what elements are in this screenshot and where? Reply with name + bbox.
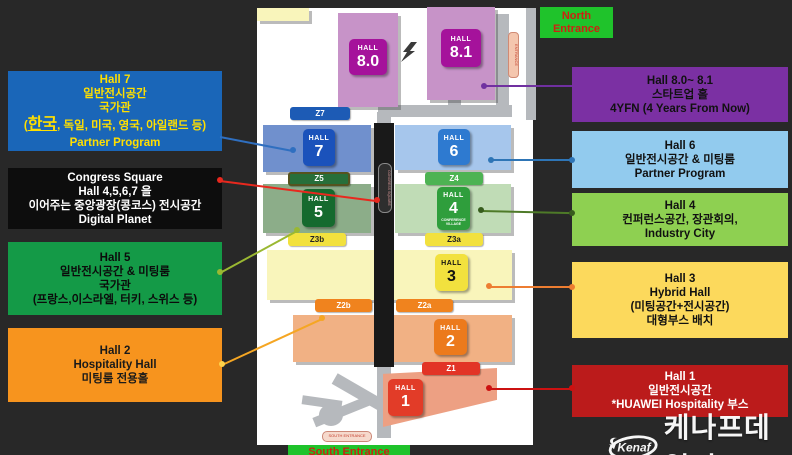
dot-hall2-box <box>219 361 225 367</box>
badge-number: 2 <box>434 333 467 350</box>
badge-number: 5 <box>302 204 335 221</box>
badge-number: 8.0 <box>349 53 387 70</box>
hall6-lines: Hall 6일반전시공간 & 미팅룸Partner Program <box>572 139 788 181</box>
hall-2-shape <box>293 315 512 362</box>
hall-8-0-badge: HALL 8.0 <box>349 39 387 75</box>
dot-hall1-map <box>486 385 492 391</box>
text-line: Hall 6 <box>572 139 788 153</box>
dot-hall1-box <box>569 385 575 391</box>
connector-hall3 <box>489 286 572 288</box>
hall7-footer: Partner Program <box>8 136 222 150</box>
badge-word: HALL <box>437 192 470 200</box>
text-line: Hall 5 <box>8 251 222 265</box>
badge-number: 4 <box>437 200 470 217</box>
text-line: 미팅룸 전용홀 <box>8 372 222 386</box>
watermark-site-name: 케나프데일리 <box>664 406 792 455</box>
dot-hall2-map <box>319 315 325 321</box>
hall-8-1-badge: HALL 8.1 <box>441 29 481 67</box>
annotation-hall2: Hall 2Hospitality Hall미팅룸 전용홀 <box>8 328 222 402</box>
annotation-congress-square: Congress SquareHall 4,5,6,7 을이어주는 중앙광장(콩… <box>8 168 222 229</box>
watermark: Kenaf 케나프데일리 <box>606 406 792 455</box>
zone-badge-z1: Z1 <box>422 362 480 375</box>
hall-6-badge: HALL 6 <box>438 129 470 165</box>
text-line: 일반전시공간 & 미팅룸 <box>8 265 222 279</box>
dot-hall5-map <box>294 227 300 233</box>
badge-word: HALL <box>435 260 468 268</box>
badge-number: 8.1 <box>441 44 481 61</box>
badge-number: 7 <box>303 143 335 160</box>
hall-2-badge: HALL 2 <box>434 319 467 355</box>
hall-3-badge: HALL 3 <box>435 254 468 291</box>
text-line: 대형부스 배치 <box>572 314 788 328</box>
text-line: Hall 7 <box>8 73 222 87</box>
badge-word: HALL <box>441 36 481 44</box>
text-line: 4YFN (4 Years From Now) <box>572 102 788 116</box>
north-entrance-label: North Entrance <box>540 7 613 38</box>
congress-square-capsule: CONGRESS SQUARE <box>378 163 392 213</box>
connector-hall8 <box>484 85 572 87</box>
dot-hall5-box <box>217 269 223 275</box>
hall7-lines: Hall 7일반전시공간국가관 <box>8 73 222 115</box>
hall-1-badge: HALL 1 <box>388 379 423 416</box>
kenaf-logo-icon: Kenaf <box>606 426 659 455</box>
zone-badge-z2a: Z2a <box>396 299 453 312</box>
congress-lines: Congress SquareHall 4,5,6,7 을이어주는 중앙광장(콩… <box>8 171 222 227</box>
annotation-hall7: Hall 7일반전시공간국가관 (한국, 독일, 미국, 영국, 아일랜드 등)… <box>8 71 222 151</box>
text-line: Hall 1 <box>572 370 788 384</box>
badge-number: 3 <box>435 268 468 285</box>
venue-map-slide: North Entrance Hall 7일반전시공간국가관 (한국, 독일, … <box>0 0 792 455</box>
south-entrance-pill: SOUTH ENTRANCE <box>322 431 372 442</box>
badge-word: HALL <box>388 385 423 393</box>
korea-emphasis: 한국 <box>28 116 57 133</box>
dot-hall7-map <box>290 147 296 153</box>
hall7-countries-line: (한국, 독일, 미국, 영국, 아일랜드 등) <box>8 115 222 136</box>
dot-hall4-map <box>478 207 484 213</box>
dot-congress-box <box>217 177 223 183</box>
text-line: Hall 2 <box>8 344 222 358</box>
annotation-hall5: Hall 5일반전시공간 & 미팅룸국가관(프랑스,이스라엘, 터키, 스위스 … <box>8 242 222 315</box>
hall-7-badge: HALL 7 <box>303 129 335 166</box>
hall8-lines: Hall 8.0~ 8.1스타트업 홀4YFN (4 Years From No… <box>572 74 788 116</box>
zone-badge-z3b: Z3b <box>288 233 346 246</box>
text-line: Hall 4 <box>572 199 788 213</box>
badge-word: HALL <box>302 196 335 204</box>
badge-subtext: CONFERENCE VILLAGE <box>437 218 470 226</box>
zone-badge-z5: Z5 <box>288 172 350 186</box>
text-line: 스타트업 홀 <box>572 88 788 102</box>
annotation-hall4: Hall 4컨퍼런스공간, 장관회의,Industry City <box>572 193 788 246</box>
dot-hall3-box <box>569 284 575 290</box>
text-line: Hall 4,5,6,7 을 <box>8 185 222 199</box>
text-line: Industry City <box>572 227 788 241</box>
hall4-lines: Hall 4컨퍼런스공간, 장관회의,Industry City <box>572 199 788 241</box>
zone-badge-z4: Z4 <box>425 172 483 185</box>
dot-hall4-box <box>569 210 575 216</box>
badge-word: HALL <box>303 135 335 143</box>
badge-number: 1 <box>388 393 423 410</box>
svg-text:Kenaf: Kenaf <box>617 441 651 455</box>
text-line: 이어주는 중앙광장(콩코스) 전시공간 <box>8 199 222 213</box>
text-line: 일반전시공간 <box>8 87 222 101</box>
text-line: Hospitality Hall <box>8 358 222 372</box>
zone-badge-z3a: Z3a <box>425 233 483 246</box>
badge-word: HALL <box>349 45 387 53</box>
badge-word: HALL <box>438 135 470 143</box>
dot-hall6-box <box>569 157 575 163</box>
side-entrance-pill: ENTRANCE <box>508 32 519 78</box>
north-entrance-text: North Entrance <box>540 10 613 36</box>
text-line: Digital Planet <box>8 213 222 227</box>
countries-rest: , 독일, 미국, 영국, 아일랜드 등) <box>57 120 206 132</box>
text-line: Hall 8.0~ 8.1 <box>572 74 788 88</box>
text-line: (미팅공간+전시공간) <box>572 300 788 314</box>
connector-hall1 <box>489 388 572 390</box>
south-entrance-label: South Entrance <box>288 445 410 455</box>
hall-3-extension <box>257 8 309 21</box>
text-line: 컨퍼런스공간, 장관회의, <box>572 213 788 227</box>
hall2-lines: Hall 2Hospitality Hall미팅룸 전용홀 <box>8 344 222 386</box>
text-line: Hybrid Hall <box>572 286 788 300</box>
text-line: 국가관 <box>8 279 222 293</box>
zone-badge-z2b: Z2b <box>315 299 372 312</box>
walkway-south-junction <box>319 404 343 426</box>
dot-hall8-map <box>481 83 487 89</box>
text-line: Congress Square <box>8 171 222 185</box>
dot-hall3-map <box>486 283 492 289</box>
annotation-hall3: Hall 3Hybrid Hall(미팅공간+전시공간)대형부스 배치 <box>572 262 788 338</box>
annotation-hall8: Hall 8.0~ 8.1스타트업 홀4YFN (4 Years From No… <box>572 67 788 122</box>
text-line: 일반전시공간 <box>572 384 788 398</box>
text-line: (프랑스,이스라엘, 터키, 스위스 등) <box>8 293 222 307</box>
walkway-top <box>378 105 512 117</box>
annotation-hall6: Hall 6일반전시공간 & 미팅룸Partner Program <box>572 131 788 188</box>
text-line: Partner Program <box>572 167 788 181</box>
dot-hall6-map <box>488 157 494 163</box>
lightning-icon <box>400 42 418 64</box>
text-line: 일반전시공간 & 미팅룸 <box>572 153 788 167</box>
hall-4-badge: HALL 4 CONFERENCE VILLAGE <box>437 187 470 230</box>
hall5-lines: Hall 5일반전시공간 & 미팅룸국가관(프랑스,이스라엘, 터키, 스위스 … <box>8 251 222 307</box>
zone-badge-z7: Z7 <box>290 107 350 120</box>
badge-number: 6 <box>438 143 470 160</box>
badge-word: HALL <box>434 325 467 333</box>
dot-congress-map <box>374 197 380 203</box>
congress-square-corridor <box>374 123 394 367</box>
south-entrance-text: South Entrance <box>288 446 410 455</box>
text-line: 국가관 <box>8 101 222 115</box>
hall3-lines: Hall 3Hybrid Hall(미팅공간+전시공간)대형부스 배치 <box>572 272 788 328</box>
connector-hall6 <box>491 159 572 161</box>
walkway-right-outer <box>526 8 536 120</box>
text-line: Hall 3 <box>572 272 788 286</box>
